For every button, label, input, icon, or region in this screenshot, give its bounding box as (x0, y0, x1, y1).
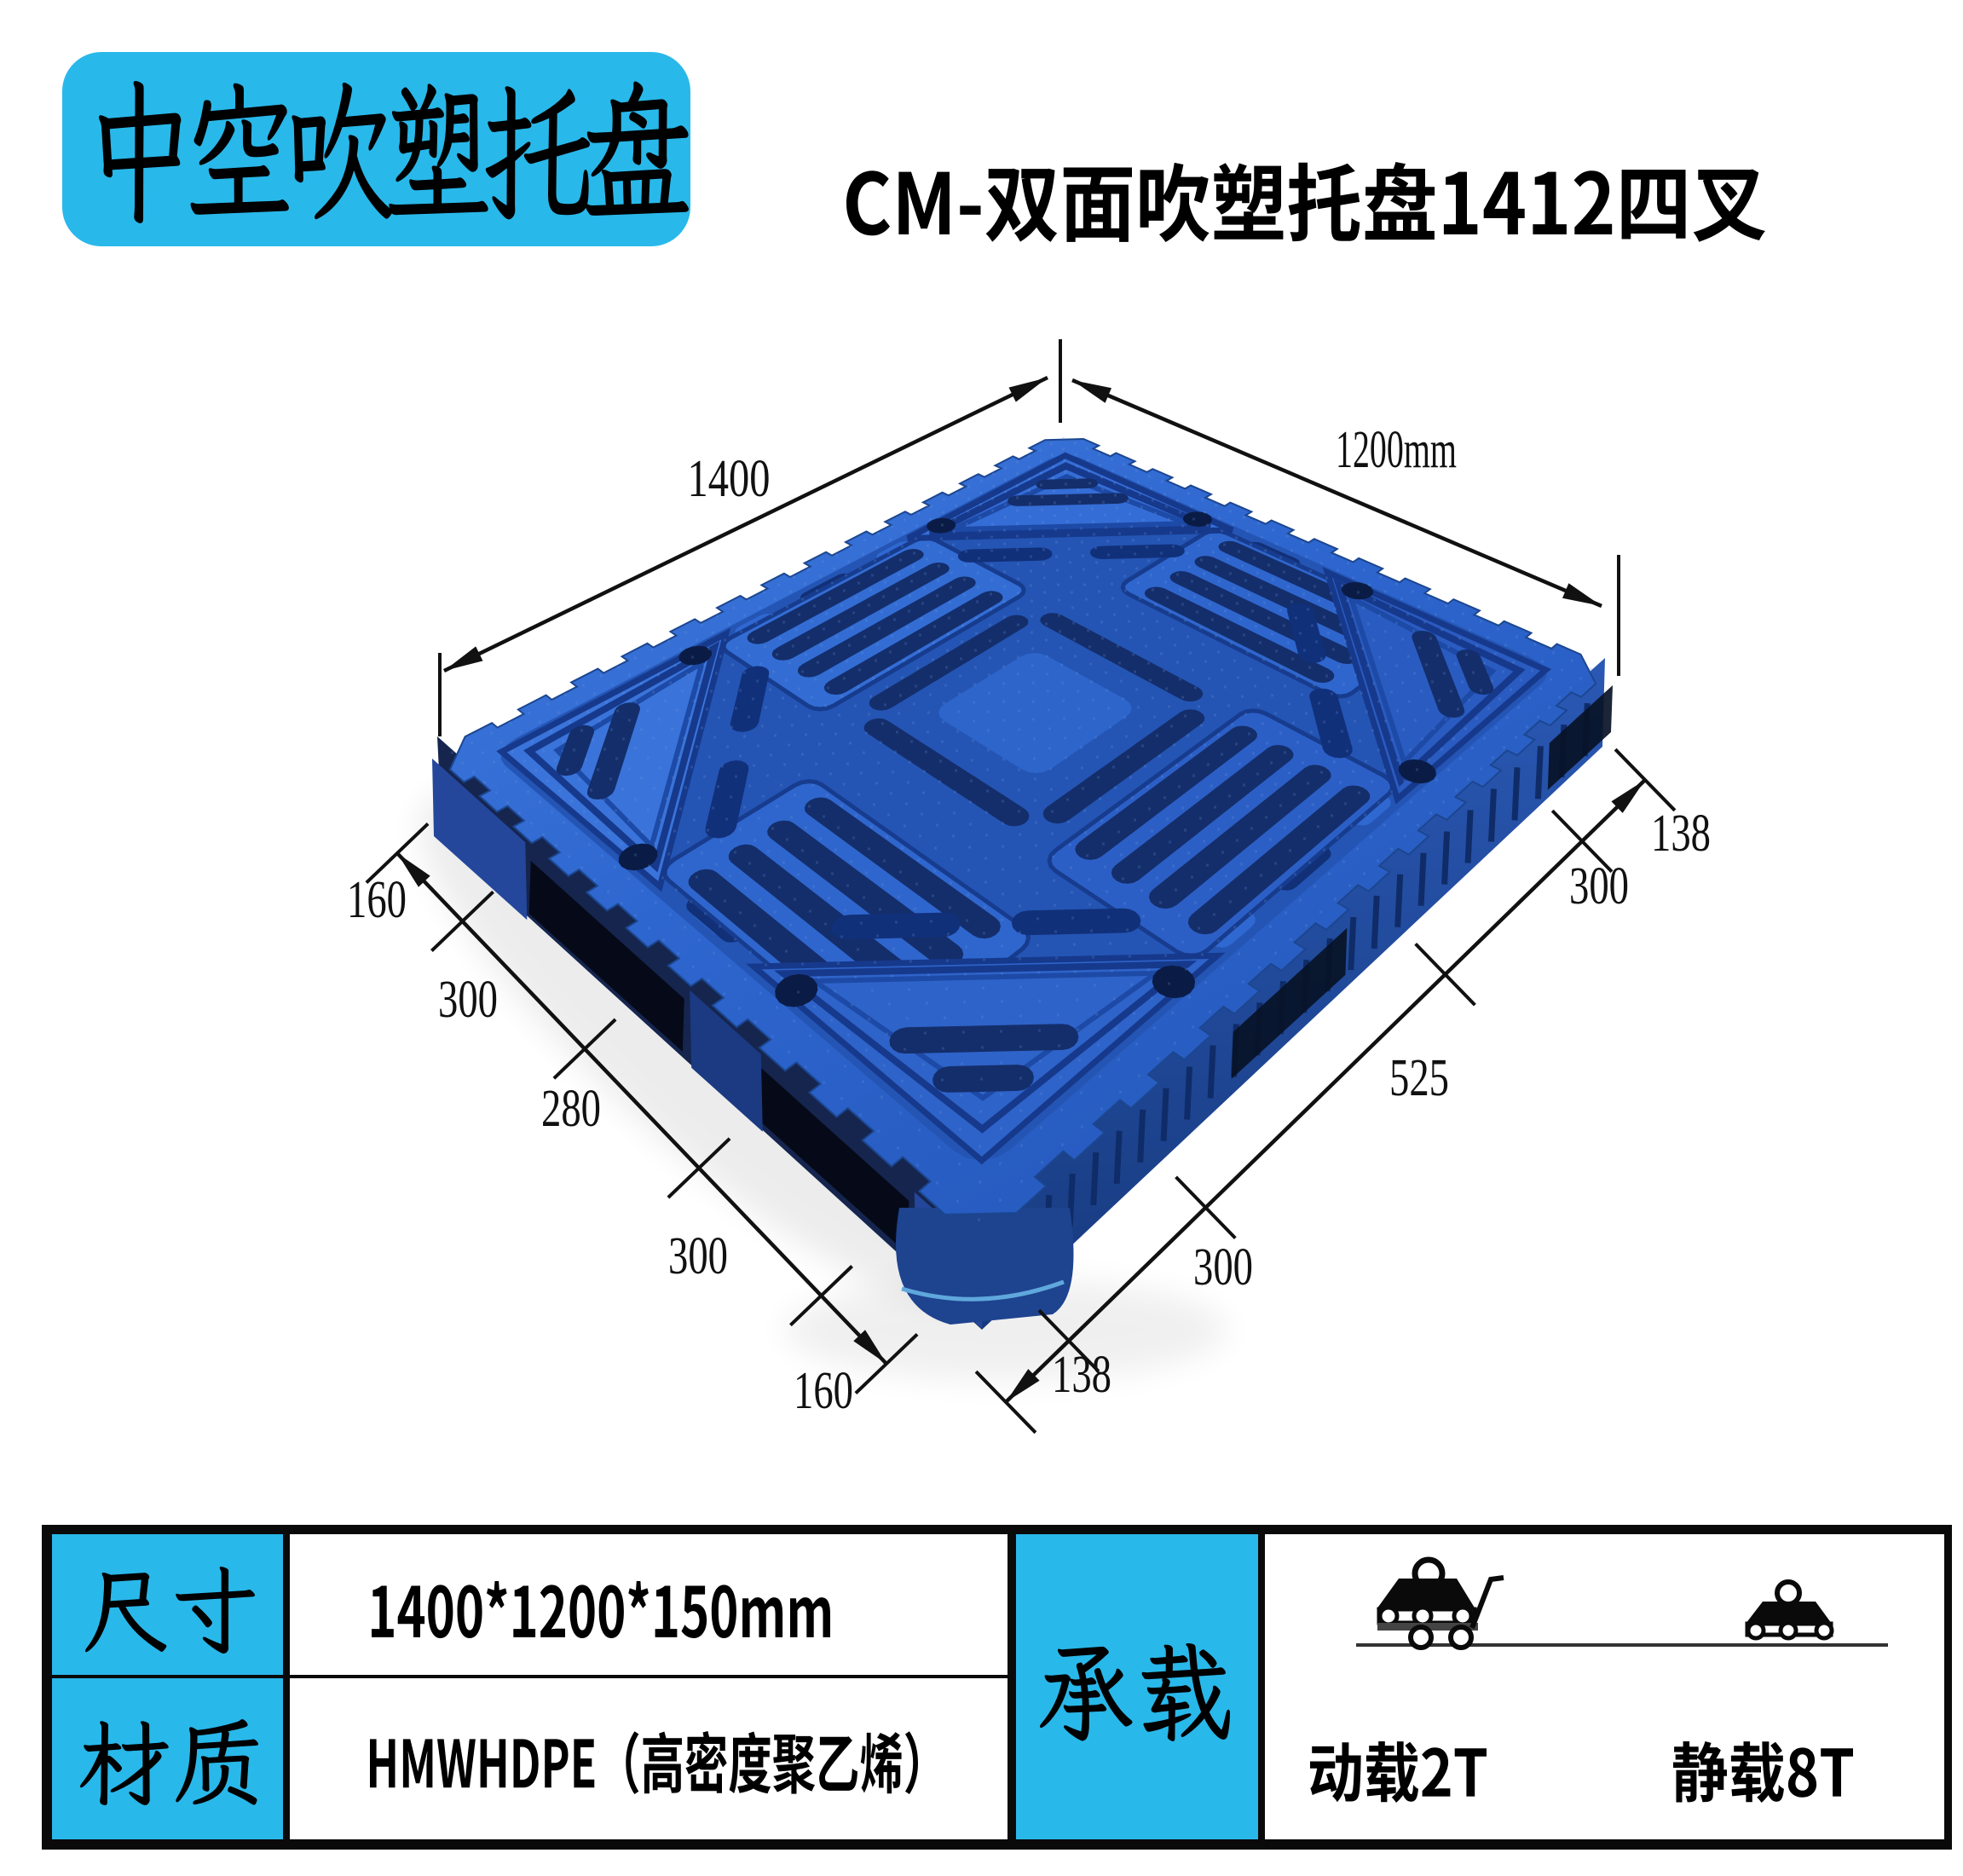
svg-text:300: 300 (1569, 857, 1629, 915)
svg-text:160: 160 (347, 871, 407, 929)
svg-text:300: 300 (1193, 1238, 1253, 1296)
svg-text:300: 300 (668, 1227, 728, 1285)
svg-text:160: 160 (794, 1362, 853, 1420)
svg-text:525: 525 (1389, 1049, 1449, 1107)
svg-text:300: 300 (438, 971, 498, 1029)
svg-text:280: 280 (541, 1080, 601, 1138)
svg-text:1400: 1400 (688, 450, 771, 508)
svg-text:1200mm: 1200mm (1336, 421, 1457, 479)
svg-text:138: 138 (1651, 805, 1711, 863)
svg-text:138: 138 (1052, 1346, 1111, 1404)
